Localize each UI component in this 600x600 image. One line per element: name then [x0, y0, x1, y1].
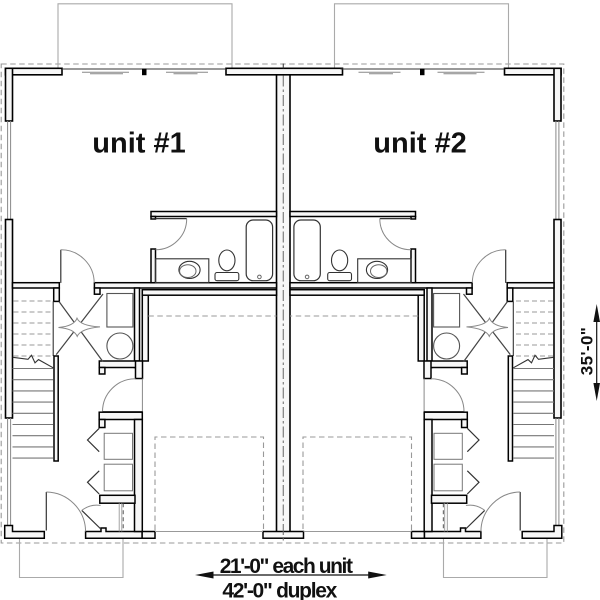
svg-text:35'-0": 35'-0": [578, 327, 597, 376]
svg-text:unit #1: unit #1: [92, 127, 185, 159]
svg-text:unit #2: unit #2: [373, 127, 466, 159]
svg-text:21'-0" each unit: 21'-0" each unit: [220, 555, 353, 578]
svg-text:42'-0" duplex: 42'-0" duplex: [222, 580, 337, 600]
